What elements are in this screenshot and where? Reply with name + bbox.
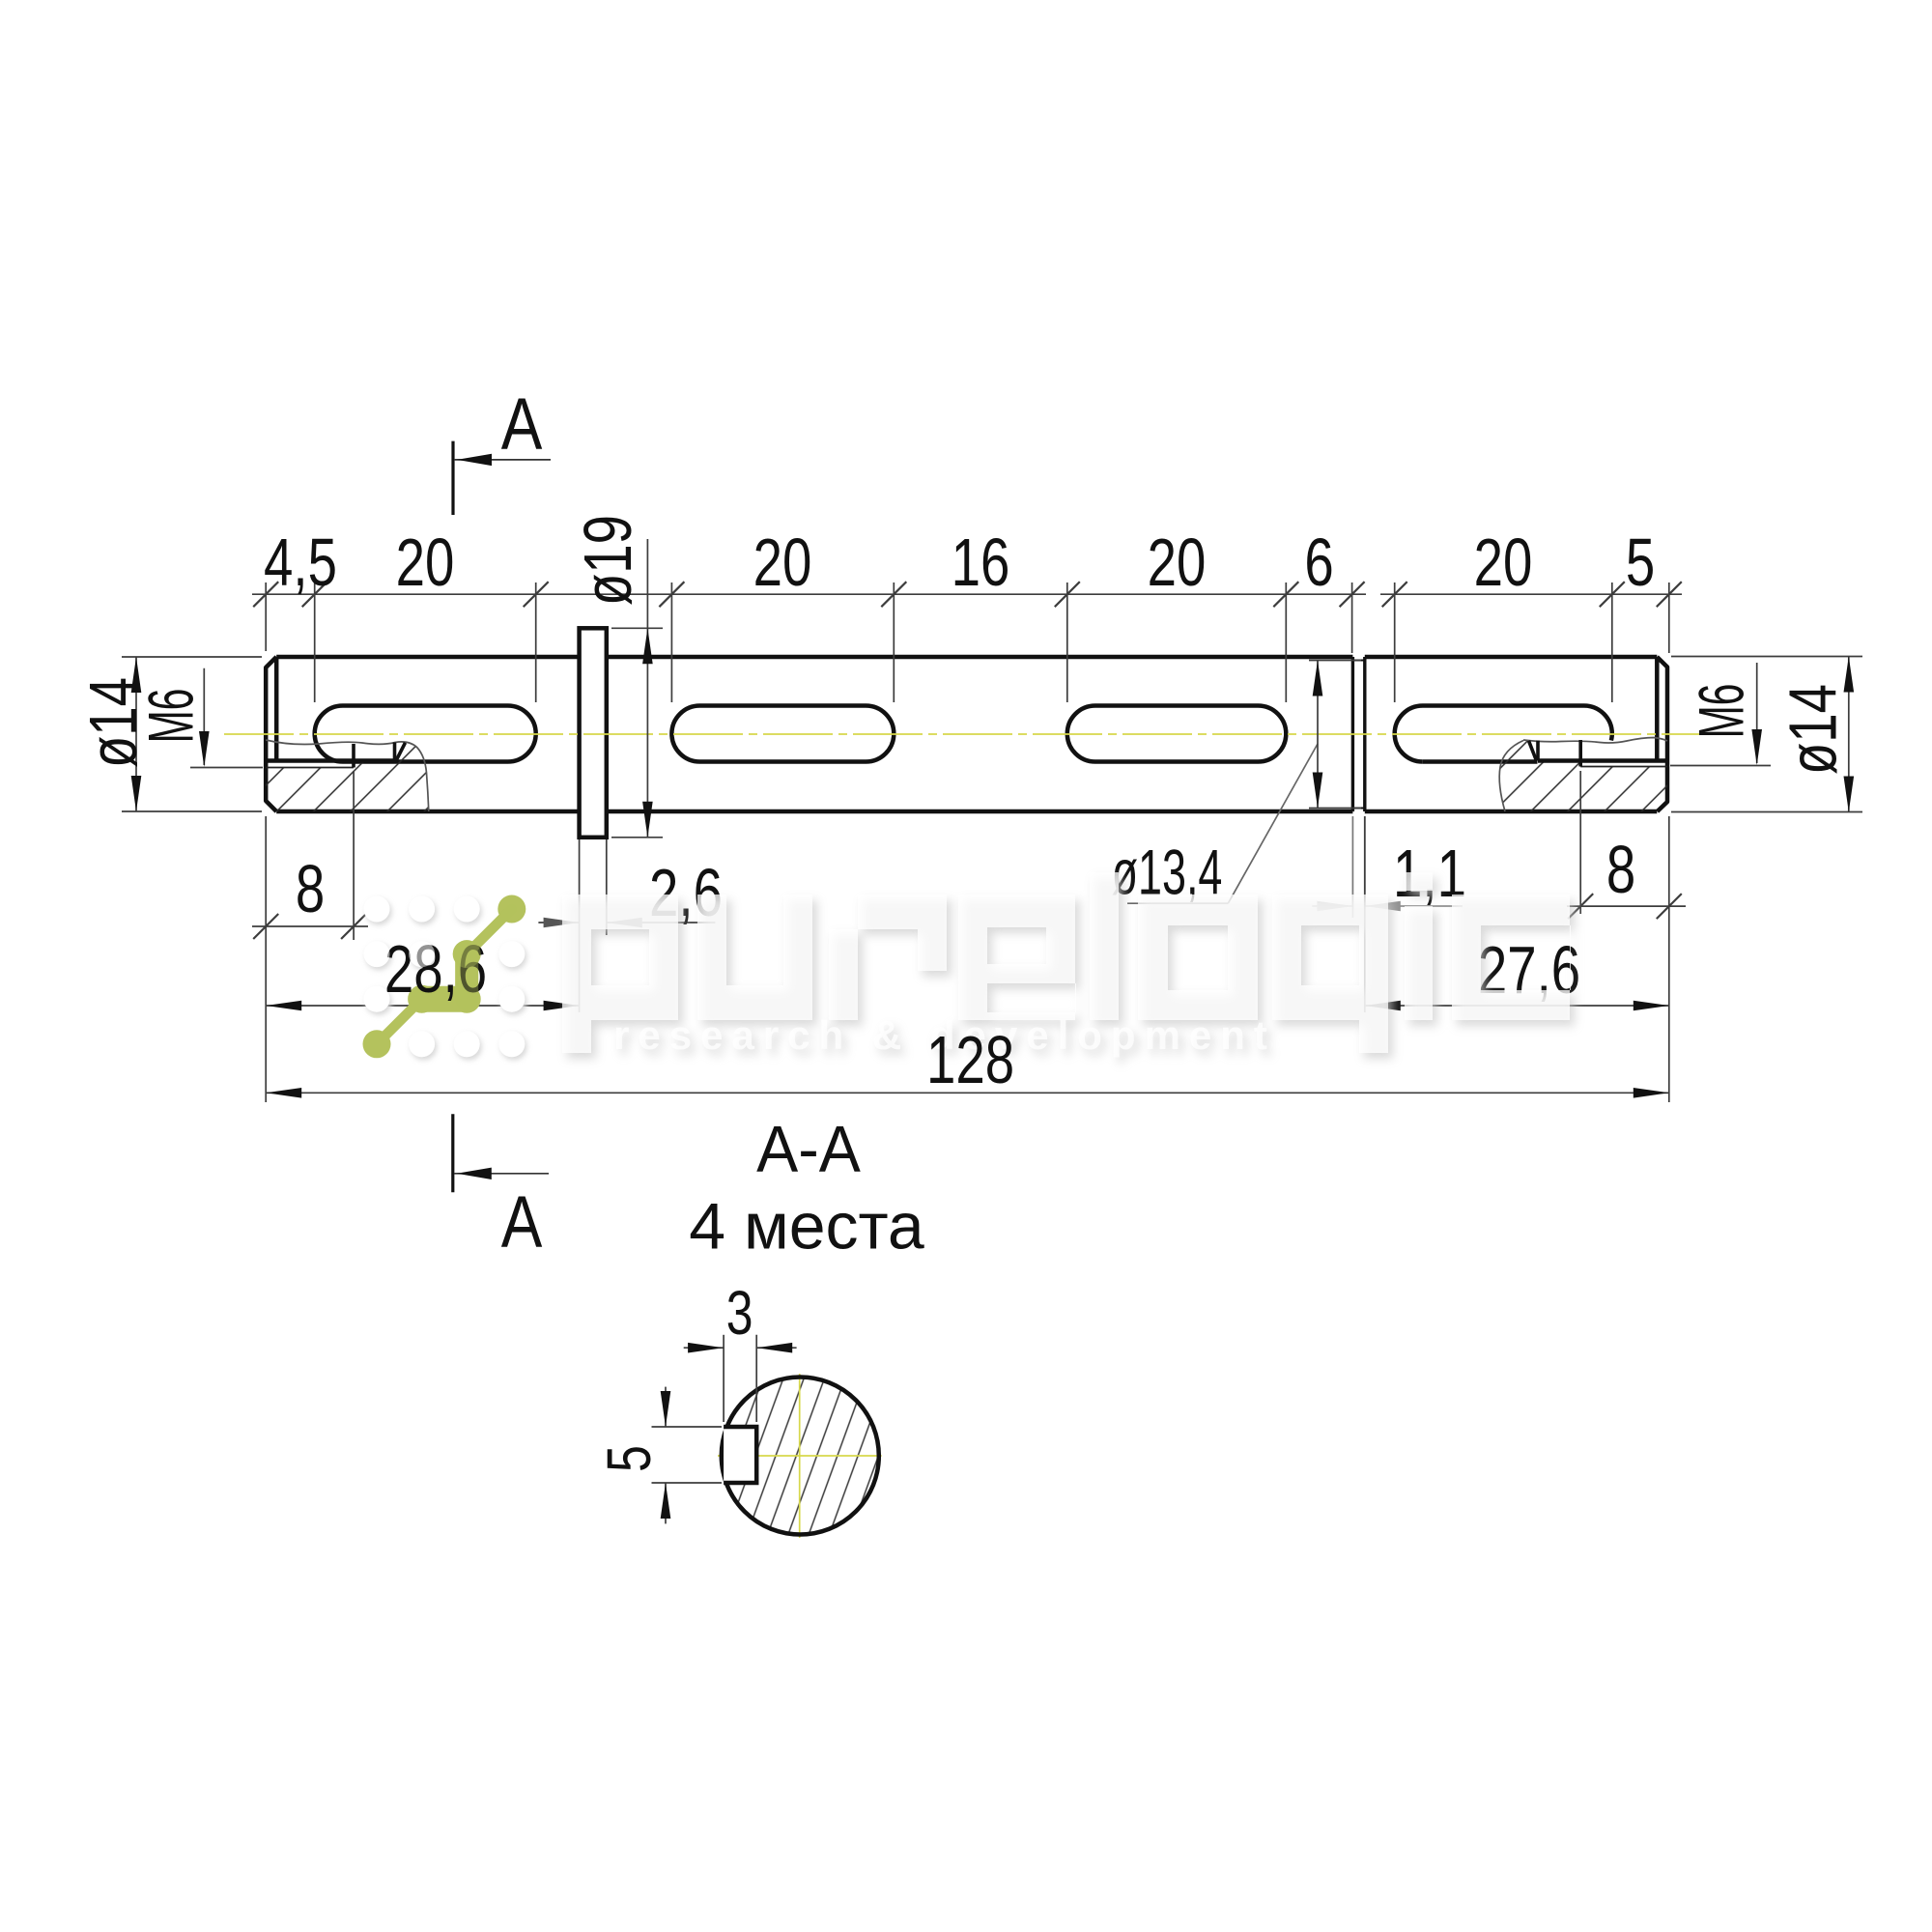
svg-text:ø14: ø14 (1776, 684, 1851, 775)
svg-text:6: 6 (1304, 526, 1333, 601)
svg-text:3: 3 (726, 1279, 753, 1348)
svg-text:20: 20 (1148, 526, 1207, 601)
svg-text:M6: M6 (135, 689, 208, 744)
svg-text:5: 5 (1626, 526, 1655, 601)
svg-text:4 места: 4 места (689, 1189, 924, 1263)
svg-text:20: 20 (396, 526, 455, 601)
svg-text:20: 20 (753, 526, 812, 601)
svg-text:5: 5 (595, 1445, 664, 1472)
svg-text:8: 8 (1606, 833, 1635, 908)
svg-text:ø19: ø19 (571, 515, 646, 606)
svg-text:128: 128 (926, 1022, 1014, 1097)
svg-text:8: 8 (296, 852, 325, 927)
svg-text:4,5: 4,5 (264, 526, 337, 601)
svg-text:20: 20 (1474, 526, 1533, 601)
svg-text:16: 16 (952, 526, 1010, 601)
svg-text:A: A (501, 383, 543, 466)
svg-text:A-A: A-A (756, 1113, 861, 1186)
svg-text:M6: M6 (1686, 684, 1758, 739)
svg-text:A: A (501, 1179, 543, 1263)
